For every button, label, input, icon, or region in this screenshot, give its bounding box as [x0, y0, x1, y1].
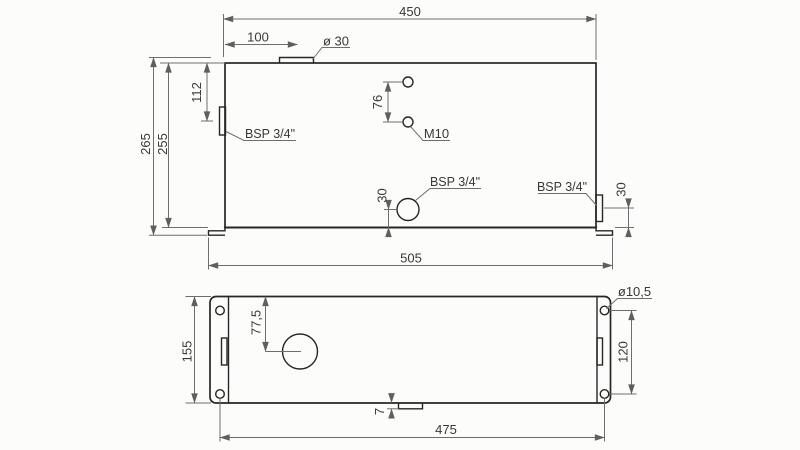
- label-bsp-front: BSP 3/4": [416, 175, 482, 201]
- drain-tab: [399, 403, 423, 409]
- dim-label: 255: [155, 133, 170, 155]
- tank-drawing-svg: 450 100 ø 30 112 265: [0, 0, 800, 450]
- m10-hole-bottom: [403, 117, 413, 127]
- dim-450: 450: [224, 4, 597, 60]
- side-slot-right: [597, 338, 603, 365]
- dim-475: 475: [220, 398, 605, 442]
- dim-76: 76: [370, 82, 402, 122]
- leader-line: [538, 194, 597, 207]
- dim-label: ø 30: [323, 34, 349, 49]
- label-m10: M10: [411, 126, 451, 141]
- dim-505: 505: [209, 238, 613, 270]
- m10-hole-top: [403, 77, 413, 87]
- dim-label: 100: [247, 30, 269, 45]
- bolt-hole-bottom-left: [216, 390, 225, 399]
- dim-label: M10: [424, 126, 449, 141]
- leader-line: [607, 299, 653, 309]
- plan-view: [210, 297, 611, 409]
- dim-label: 30: [613, 182, 628, 196]
- dim-label: 7: [372, 408, 387, 415]
- label-bsp-right: BSP 3/4": [537, 180, 597, 206]
- leader-line: [313, 48, 351, 60]
- dim-label: 155: [179, 341, 194, 363]
- dim-label: 77,5: [248, 310, 263, 335]
- technical-drawing-canvas: 450 100 ø 30 112 265: [0, 0, 800, 450]
- dim-label: 505: [400, 251, 422, 266]
- front-view: [209, 58, 613, 236]
- dim-155: 155: [179, 297, 211, 404]
- dim-100: 100: [225, 30, 298, 45]
- dim-label: 76: [370, 95, 385, 109]
- dim-77-5: 77,5: [248, 297, 301, 352]
- label-neck-diameter: ø 30: [313, 34, 351, 60]
- mounting-foot-right: [596, 228, 613, 236]
- tank-body-outline: [225, 63, 596, 228]
- dim-label: 265: [138, 133, 153, 155]
- bsp-port-right: [596, 195, 603, 222]
- front-view-dimensions: 450 100 ø 30 112 265: [138, 4, 634, 270]
- dim-7: 7: [372, 395, 399, 417]
- dim-label: ø10,5: [618, 284, 651, 299]
- dim-label: BSP 3/4": [537, 180, 587, 194]
- leader-line: [416, 189, 482, 201]
- bsp-port-front-circle: [397, 199, 419, 221]
- label-bolt-hole-diameter: ø10,5: [607, 284, 653, 309]
- dim-label: 475: [435, 422, 457, 437]
- dim-label: 112: [189, 82, 204, 103]
- dim-30-right: 30: [604, 182, 634, 235]
- bolt-hole-top-left: [216, 306, 225, 315]
- plan-outline: [210, 297, 611, 404]
- mounting-foot-left: [209, 228, 226, 236]
- side-slot-left: [222, 338, 228, 365]
- dim-label: 120: [615, 341, 630, 363]
- dim-112: 112: [160, 63, 225, 121]
- dim-label: BSP 3/4": [245, 127, 295, 141]
- dim-label: 30: [374, 188, 389, 202]
- label-bsp-left: BSP 3/4": [226, 127, 296, 141]
- plan-view-dimensions: 155 77,5 ø10,5 120 475: [179, 284, 652, 442]
- dim-120: 120: [610, 311, 637, 395]
- bolt-hole-bottom-right: [600, 390, 609, 399]
- dim-label: BSP 3/4": [430, 175, 480, 189]
- dim-label: 450: [399, 4, 421, 19]
